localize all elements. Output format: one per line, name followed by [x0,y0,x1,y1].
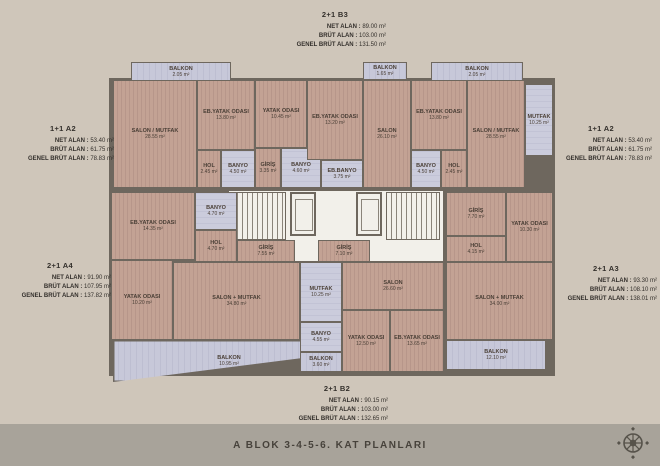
room-name: YATAK ODASI [511,221,548,228]
room-area: 7.55 m² [258,251,275,257]
elevator-shaft [356,192,382,236]
room-area: 10.30 m² [520,227,540,233]
room-name: BANYO [311,331,331,338]
room-name: BALKON [217,355,241,362]
room-name: GİRİŞ [259,245,274,252]
apartment-info-2-1-a3: 2+1 A3NET ALAN : 93.30 m²BRÜT ALAN : 108… [541,264,660,304]
floor-plan-sheet: BALKON2.05 m²SALON / MUTFAK28.55 m²EB.YA… [0,0,660,466]
area-row-net: NET ALAN : 53.40 m² [0,137,128,146]
room-name: HOL [448,163,460,170]
room-banyo: BANYO4.70 m² [195,192,237,230]
room-eb-yatak-odasi: EB.YATAK ODASI13.80 m² [411,80,467,150]
room-area: 28.55 m² [486,134,506,140]
room-name: SALON [383,280,402,287]
room-salon-mutfak: SALON + MUTFAK34.80 m² [173,262,300,340]
area-row-brut: BRÜT ALAN : 61.75 m² [536,146,660,155]
room-name: BALKON [169,66,193,73]
room-area: 12.10 m² [486,355,506,361]
room-gi-ri-: GİRİŞ3.35 m² [255,148,281,188]
room-name: GİRİŞ [337,245,352,252]
area-row-net: NET ALAN : 89.00 m² [270,23,400,32]
room-area: 1.65 m² [377,71,394,77]
room-area: 3.75 m² [334,174,351,180]
room-name: BALKON [465,66,489,73]
room-name: SALON + MUTFAK [212,295,260,302]
room-hol: HOL2.45 m² [197,150,221,188]
room-name: SALON [377,128,396,135]
apartment-info-2-1-b2: 2+1 B2NET ALAN : 90.15 m²BRÜT ALAN : 103… [272,384,402,424]
elevator-shaft [290,192,316,236]
room-name: BALKON [309,356,333,363]
room-area: 34.80 m² [227,301,247,307]
room-area: 12.50 m² [356,341,376,347]
room-area: 13.80 m² [429,115,449,121]
area-row-net: NET ALAN : 93.30 m² [541,277,660,286]
apartment-name: 2+1 A4 [0,261,125,270]
room-area: 26.60 m² [383,286,403,292]
room-area: 34.00 m² [490,301,510,307]
room-yatak-odasi: YATAK ODASI10.45 m² [255,80,307,148]
room-area: 10.20 m² [132,300,152,306]
room-area: 7.10 m² [336,251,353,257]
room-balkon: BALKON2.05 m² [431,62,523,82]
room-area: 3.60 m² [313,362,330,368]
room-name: HOL [470,243,482,250]
area-row-genel: GENEL BRÜT ALAN : 132.65 m² [272,415,402,424]
room-name: YATAK ODASI [348,335,385,342]
room-salon: SALON26.10 m² [363,80,411,188]
area-row-net: NET ALAN : 53.40 m² [536,137,660,146]
area-row-brut: BRÜT ALAN : 108.10 m² [541,286,660,295]
room-salon-mutfak: SALON + MUTFAK34.00 m² [446,262,553,340]
room-eb-yatak-odasi: EB.YATAK ODASI13.80 m² [197,80,255,150]
room-area: 13.65 m² [407,341,427,347]
room-name: BANYO [416,163,436,170]
room-banyo: BANYO4.55 m² [300,322,342,352]
area-row-brut: BRÜT ALAN : 103.00 m² [270,32,400,41]
room-area: 10.25 m² [311,292,331,298]
room-area: 26.10 m² [377,134,397,140]
room-salon-mutfak: SALON / MUTFAK28.55 m² [467,80,525,188]
room-name: SALON / MUTFAK [132,128,179,135]
room-banyo: BANYO4.50 m² [221,150,255,188]
room-name: EB.YATAK ODASI [130,220,176,227]
room-area: 4.50 m² [230,169,247,175]
area-row-genel: GENEL BRÜT ALAN : 138.01 m² [541,295,660,304]
room-name: EB.YATAK ODASI [416,109,462,116]
area-row-brut: BRÜT ALAN : 61.75 m² [0,146,128,155]
room-hol: HOL4.70 m² [195,230,237,262]
room-name: BANYO [291,162,311,169]
room-eb-yatak-odasi: EB.YATAK ODASI13.20 m² [307,80,363,160]
room-banyo: BANYO4.50 m² [411,150,441,188]
room-area: 4.60 m² [293,168,310,174]
room-balkon: BALKON12.10 m² [446,340,546,370]
room-balkon: BALKON1.65 m² [363,62,407,80]
room-area: 4.70 m² [208,211,225,217]
room-area: 2.45 m² [201,169,218,175]
room-name: GİRİŞ [261,162,276,169]
area-row-brut: BRÜT ALAN : 103.00 m² [272,406,402,415]
room-name: SALON + MUTFAK [475,295,523,302]
area-row-genel: GENEL BRÜT ALAN : 131.50 m² [270,41,400,50]
room-area: 13.20 m² [325,120,345,126]
room-name: YATAK ODASI [263,108,300,115]
apartment-name: 2+1 B3 [270,10,400,19]
room-hol: HOL4.15 m² [446,236,506,262]
area-row-brut: BRÜT ALAN : 107.95 m² [0,283,125,292]
room-name: EB.BANYO [327,168,356,175]
room-eb-banyo: EB.BANYO3.75 m² [321,160,363,188]
apartment-name: 1+1 A2 [536,124,660,133]
apartment-name: 2+1 B2 [272,384,402,393]
room-area: 14.35 m² [143,226,163,232]
room-name: GİRİŞ [469,208,484,215]
area-row-genel: GENEL BRÜT ALAN : 78.83 m² [536,155,660,164]
room-gi-ri-: GİRİŞ7.70 m² [446,192,506,236]
room-area: 10.45 m² [271,114,291,120]
room-area: 2.05 m² [173,72,190,78]
room-name: BANYO [228,163,248,170]
room-name: BALKON [484,349,508,356]
room-name: EB.YATAK ODASI [394,335,440,342]
area-row-genel: GENEL BRÜT ALAN : 137.82 m² [0,292,125,301]
stair-shaft [232,192,286,240]
room-name: BALKON [373,65,397,72]
compass-rose-icon [616,426,650,460]
room-name: MUTFAK [528,114,551,121]
room-area: 28.55 m² [145,134,165,140]
room-area: 2.45 m² [446,169,463,175]
room-area: 4.50 m² [418,169,435,175]
room-name: EB.YATAK ODASI [203,109,249,116]
room-gi-ri-: GİRİŞ7.10 m² [318,240,370,262]
room-balkon: BALKON2.05 m² [131,62,231,82]
room-area: 3.35 m² [260,168,277,174]
room-gi-ri-: GİRİŞ7.55 m² [237,240,295,262]
stair-shaft [386,192,440,240]
room-name: SALON / MUTFAK [473,128,520,135]
room-salon: SALON26.60 m² [342,262,444,310]
room-eb-yatak-odasi: EB.YATAK ODASI13.65 m² [390,310,444,372]
room-mutfak: MUTFAK10.25 m² [300,262,342,322]
room-area: 13.80 m² [216,115,236,121]
room-area: 4.15 m² [468,249,485,255]
apartment-name: 1+1 A2 [0,124,128,133]
room-name: MUTFAK [310,286,333,293]
room-area: 4.70 m² [208,246,225,252]
room-name: YATAK ODASI [124,294,161,301]
room-area: 4.55 m² [313,337,330,343]
apartment-info-1-1-a2: 1+1 A2NET ALAN : 53.40 m²BRÜT ALAN : 61.… [0,124,128,164]
area-row-net: NET ALAN : 90.15 m² [272,397,402,406]
area-row-genel: GENEL BRÜT ALAN : 78.83 m² [0,155,128,164]
plan-title: A BLOK 3-4-5-6. KAT PLANLARI [0,440,660,451]
area-row-net: NET ALAN : 91.90 m² [0,274,125,283]
room-area: 2.05 m² [469,72,486,78]
apartment-name: 2+1 A3 [541,264,660,273]
room-name: BANYO [206,205,226,212]
room-name: HOL [203,163,215,170]
apartment-info-1-1-a2: 1+1 A2NET ALAN : 53.40 m²BRÜT ALAN : 61.… [536,124,660,164]
room-name: EB.YATAK ODASI [312,114,358,121]
room-yatak-odasi: YATAK ODASI12.50 m² [342,310,390,372]
room-balkon: BALKON3.60 m² [300,352,342,372]
apartment-info-2-1-a4: 2+1 A4NET ALAN : 91.90 m²BRÜT ALAN : 107… [0,261,125,301]
room-hol: HOL2.45 m² [441,150,467,188]
room-eb-yatak-odasi: EB.YATAK ODASI14.35 m² [111,192,195,260]
room-name: HOL [210,240,222,247]
apartment-info-2-1-b3: 2+1 B3NET ALAN : 89.00 m²BRÜT ALAN : 103… [270,10,400,50]
room-yatak-odasi: YATAK ODASI10.30 m² [506,192,553,262]
room-area: 7.70 m² [468,214,485,220]
